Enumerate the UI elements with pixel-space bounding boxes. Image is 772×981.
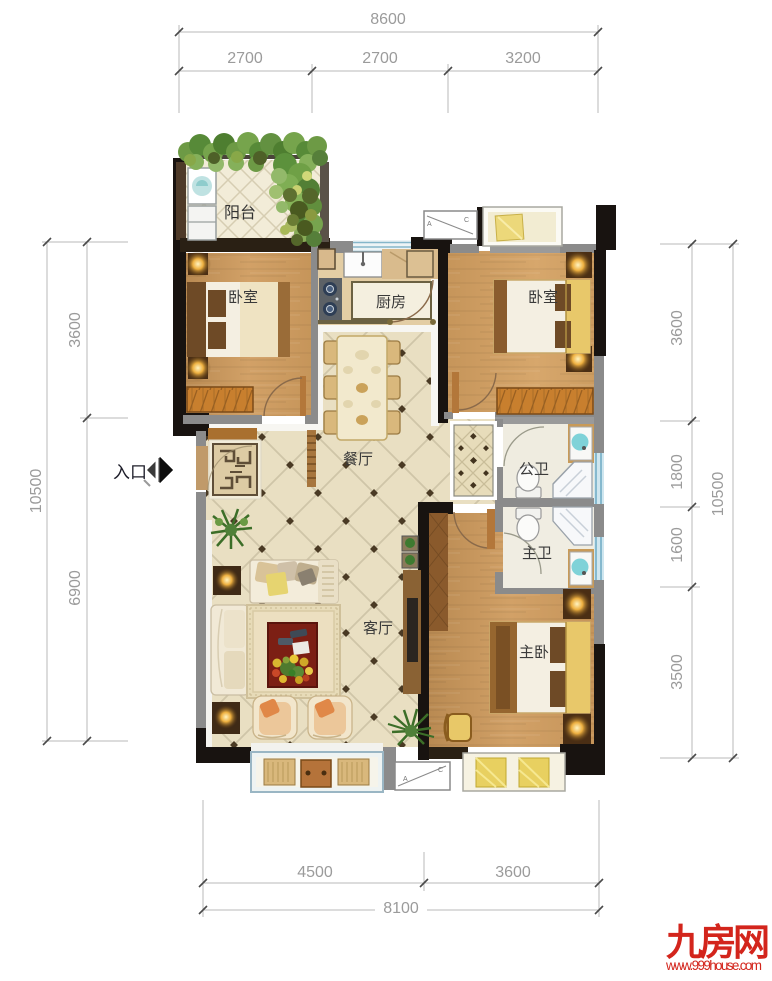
svg-text:阳台: 阳台 [224,204,256,222]
svg-text:卧室: 卧室 [528,289,558,306]
svg-text:3600: 3600 [669,310,686,346]
svg-text:卧室: 卧室 [228,289,258,306]
svg-text:4500: 4500 [297,864,333,881]
svg-text:客厅: 客厅 [363,620,393,637]
svg-text:10500: 10500 [710,472,727,517]
svg-text:www.999house.com: www.999house.com [665,958,762,973]
svg-text:主卧: 主卧 [519,644,549,661]
svg-text:公卫: 公卫 [519,461,549,478]
svg-text:3600: 3600 [67,312,84,348]
svg-text:主卫: 主卫 [522,545,552,562]
svg-text:2700: 2700 [227,50,263,67]
svg-text:10500: 10500 [28,469,45,514]
svg-text:餐厅: 餐厅 [343,451,373,468]
svg-text:九房网: 九房网 [666,922,770,963]
svg-text:厨房: 厨房 [376,294,406,311]
svg-text:1800: 1800 [669,454,686,490]
svg-text:3600: 3600 [495,864,531,881]
svg-text:6900: 6900 [67,570,84,606]
svg-text:入口: 入口 [113,463,147,482]
svg-text:2700: 2700 [362,50,398,67]
svg-text:8100: 8100 [383,900,419,917]
svg-text:C: C [464,217,469,224]
svg-text:A: A [427,221,432,228]
svg-text:8600: 8600 [370,11,406,28]
svg-text:1600: 1600 [669,527,686,563]
svg-text:3500: 3500 [669,654,686,690]
svg-text:A: A [403,776,408,783]
svg-text:3200: 3200 [505,50,541,67]
svg-text:C: C [438,767,443,774]
